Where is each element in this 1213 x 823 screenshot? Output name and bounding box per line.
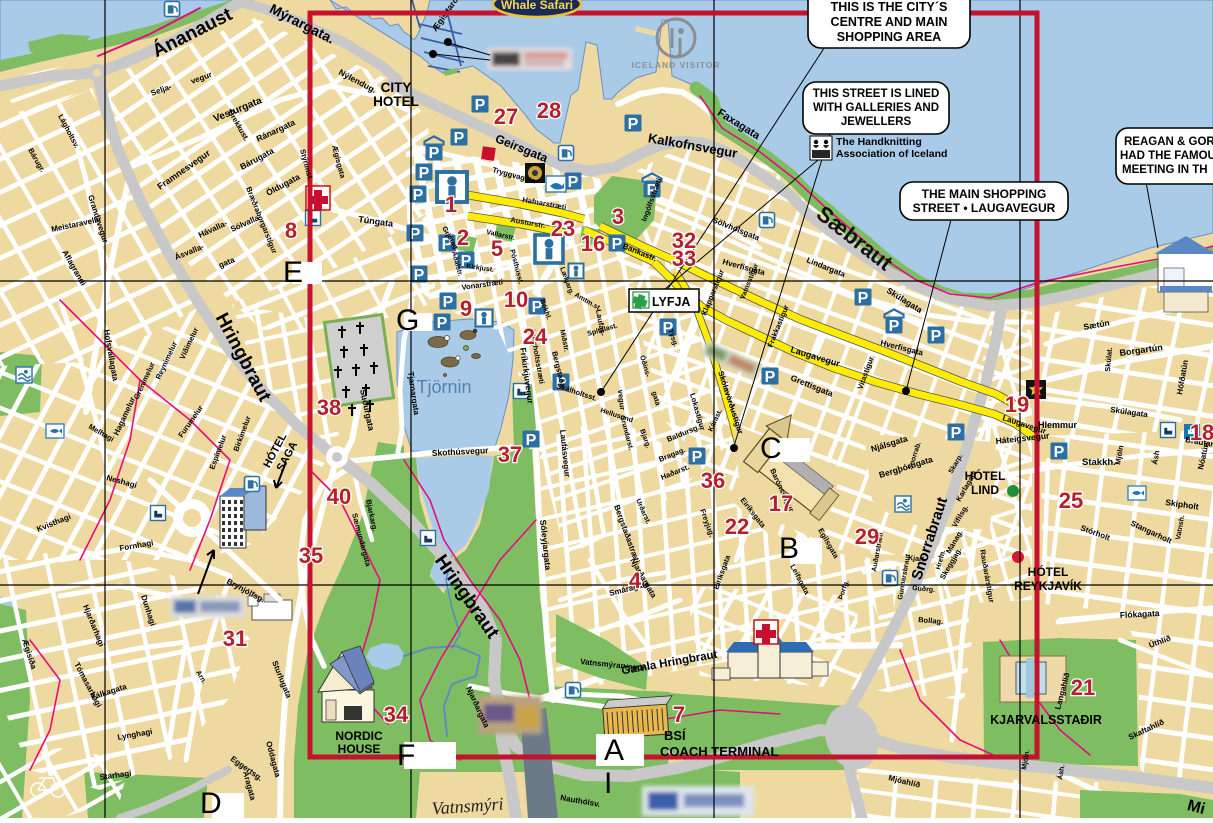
- svg-text:HÓTEL: HÓTEL: [1028, 564, 1069, 579]
- svg-text:NORDIC: NORDIC: [335, 729, 383, 743]
- svg-text:P: P: [931, 328, 942, 345]
- svg-text:25: 25: [1059, 488, 1083, 513]
- svg-text:P: P: [612, 236, 623, 253]
- svg-text:23: 23: [551, 216, 575, 241]
- svg-text:P: P: [765, 369, 776, 386]
- svg-text:37: 37: [498, 442, 522, 467]
- svg-text:3: 3: [612, 204, 624, 229]
- svg-text:F: F: [397, 739, 415, 772]
- svg-text:33: 33: [672, 246, 696, 271]
- svg-text:STREET • LAUGAVEGUR: STREET • LAUGAVEGUR: [913, 201, 1056, 215]
- svg-text:CENTRE AND MAIN: CENTRE AND MAIN: [831, 15, 948, 29]
- svg-text:HOTEL: HOTEL: [373, 94, 419, 109]
- svg-text:SHOPPING AREA: SHOPPING AREA: [837, 30, 941, 44]
- svg-text:P: P: [889, 318, 900, 335]
- svg-text:THIS STREET IS LINED: THIS STREET IS LINED: [813, 88, 940, 100]
- svg-text:7: 7: [673, 702, 685, 727]
- svg-text:36: 36: [701, 468, 725, 493]
- svg-text:BSÍ: BSÍ: [664, 728, 686, 743]
- svg-text:P: P: [413, 187, 424, 204]
- svg-text:28: 28: [537, 98, 561, 123]
- svg-text:10: 10: [504, 287, 528, 312]
- svg-text:A: A: [604, 734, 624, 767]
- svg-text:5: 5: [491, 236, 503, 261]
- svg-text:P: P: [858, 290, 869, 307]
- svg-text:27: 27: [494, 104, 518, 129]
- svg-text:REAGAN & GOR: REAGAN & GOR: [1124, 136, 1213, 148]
- svg-text:38: 38: [317, 395, 341, 420]
- svg-text:21: 21: [1071, 675, 1095, 700]
- svg-text:G: G: [396, 304, 419, 337]
- svg-text:4: 4: [629, 568, 642, 593]
- svg-text:JEWELLERS: JEWELLERS: [841, 116, 912, 128]
- svg-text:P: P: [437, 315, 448, 332]
- svg-text:P: P: [1054, 444, 1065, 461]
- svg-text:B: B: [779, 532, 799, 565]
- svg-text:WITH GALLERIES AND: WITH GALLERIES AND: [813, 102, 939, 114]
- svg-text:9: 9: [460, 296, 472, 321]
- svg-text:P: P: [951, 425, 962, 442]
- svg-text:P: P: [692, 449, 703, 466]
- svg-text:29: 29: [855, 524, 879, 549]
- svg-text:16: 16: [581, 231, 605, 256]
- svg-text:P: P: [454, 130, 465, 147]
- svg-text:24: 24: [523, 324, 548, 349]
- svg-text:17: 17: [769, 491, 793, 516]
- svg-text:18: 18: [1190, 420, 1213, 445]
- svg-text:31: 31: [223, 626, 247, 651]
- svg-text:C: C: [760, 432, 782, 465]
- svg-text:HÓTEL: HÓTEL: [965, 468, 1006, 483]
- svg-text:34: 34: [384, 702, 409, 727]
- svg-text:P: P: [628, 116, 639, 133]
- svg-text:D: D: [200, 787, 222, 818]
- svg-text:CITY: CITY: [381, 80, 412, 95]
- svg-text:Whale Safari: Whale Safari: [501, 0, 573, 12]
- svg-text:E: E: [283, 256, 303, 289]
- svg-text:The Handknitting: The Handknitting: [836, 136, 922, 148]
- svg-text:P: P: [475, 97, 486, 114]
- svg-text:Tjörnin: Tjörnin: [416, 377, 471, 397]
- svg-text:Association of Iceland: Association of Iceland: [836, 148, 947, 160]
- svg-text:P: P: [568, 174, 579, 191]
- svg-text:HOUSE: HOUSE: [338, 742, 381, 756]
- svg-text:P: P: [429, 145, 440, 162]
- svg-text:2: 2: [457, 225, 469, 250]
- svg-text:19: 19: [1005, 392, 1029, 417]
- svg-text:LYFJA: LYFJA: [652, 295, 690, 309]
- svg-text:LIND: LIND: [971, 483, 999, 497]
- svg-text:REYKJAVÍK: REYKJAVÍK: [1014, 578, 1082, 593]
- svg-text:KJARVALSSTAÐIR: KJARVALSSTAÐIR: [990, 713, 1102, 727]
- svg-text:Hlemmur: Hlemmur: [1038, 420, 1078, 430]
- svg-text:MEETING IN TH: MEETING IN TH: [1122, 164, 1208, 176]
- svg-text:Stakkh.: Stakkh.: [1082, 457, 1116, 468]
- svg-text:Flókagata: Flókagata: [1120, 608, 1160, 620]
- svg-text:8: 8: [285, 218, 297, 243]
- svg-text:35: 35: [299, 543, 323, 568]
- svg-text:THE MAIN SHOPPING: THE MAIN SHOPPING: [922, 187, 1047, 201]
- svg-text:P: P: [419, 165, 430, 182]
- svg-text:40: 40: [327, 484, 351, 509]
- svg-text:P: P: [443, 294, 454, 311]
- svg-text:COACH TERMINAL: COACH TERMINAL: [660, 744, 778, 759]
- svg-text:THIS IS THE CITY´S: THIS IS THE CITY´S: [831, 0, 948, 14]
- svg-text:1: 1: [445, 192, 457, 217]
- svg-text:I: I: [604, 767, 612, 800]
- svg-text:22: 22: [725, 514, 749, 539]
- svg-text:ICELAND VISITOR: ICELAND VISITOR: [632, 60, 721, 70]
- svg-text:HAD THE FAMOU: HAD THE FAMOU: [1120, 150, 1213, 162]
- svg-text:P: P: [526, 432, 537, 449]
